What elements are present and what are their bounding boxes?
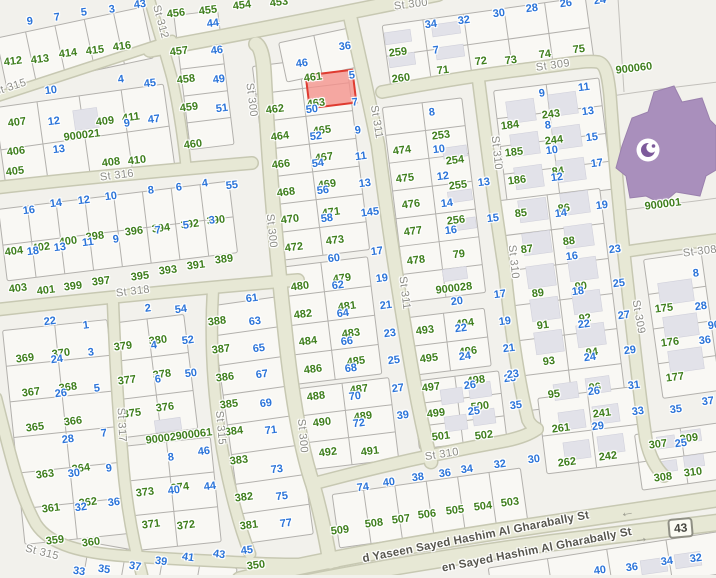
highlighted-parcel[interactable] — [306, 70, 357, 108]
route-shield: 43 — [667, 517, 694, 539]
route-shield-number: 43 — [673, 520, 688, 535]
map-base-svg — [0, 0, 716, 575]
mosque-icon — [637, 139, 660, 162]
map-canvas[interactable]: 4124134144154164054064074094114084109000… — [0, 0, 716, 575]
highlight-layer — [306, 70, 357, 108]
